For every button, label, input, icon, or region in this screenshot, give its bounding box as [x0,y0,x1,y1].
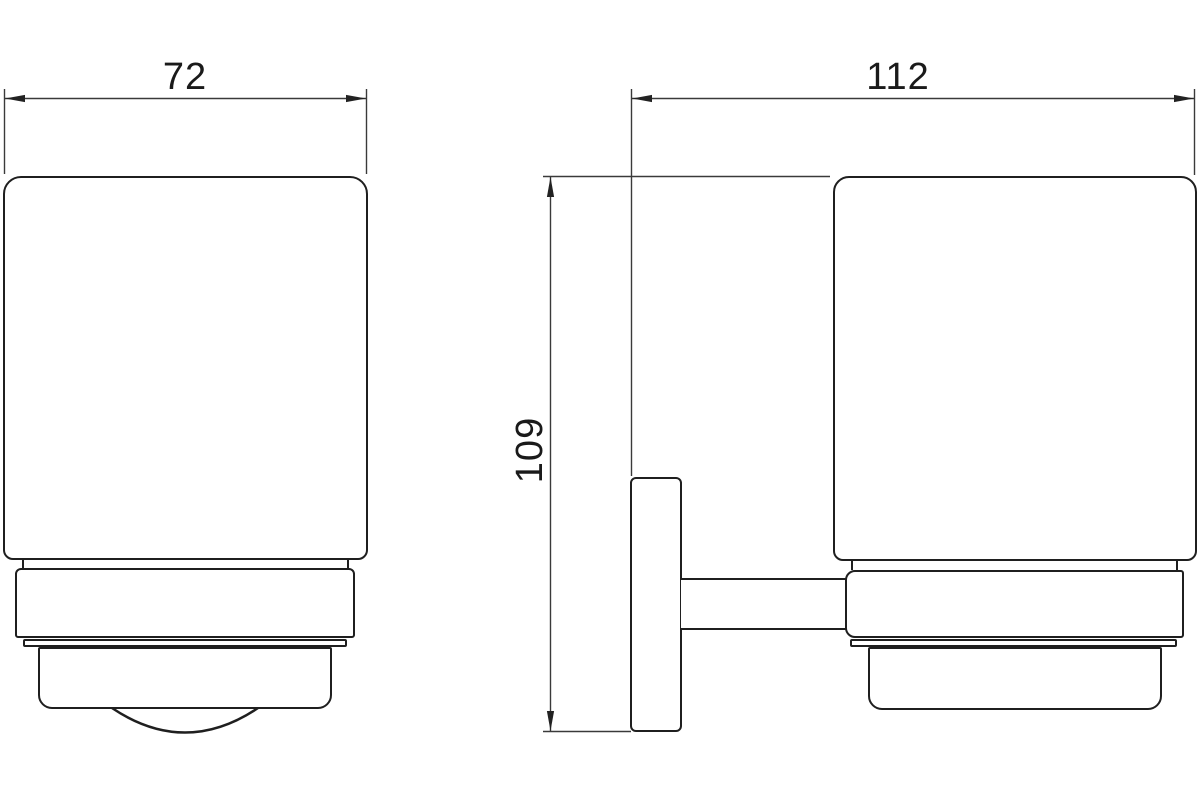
glass-bottom-arc [112,708,258,733]
dim-side-height-arrow-top [547,177,554,197]
dim-front-width-arrow-right [346,95,366,102]
technical-drawing-canvas: 72 112 109 [0,0,1200,800]
dim-side-height [543,177,830,732]
dim-front-width-label: 72 [125,55,245,99]
dim-side-width [632,89,1195,476]
dim-side-height-arrow-bottom [547,711,554,731]
dim-side-width-arrow-left [632,95,652,102]
dim-side-width-arrow-right [1174,95,1194,102]
dim-side-width-label: 112 [828,55,968,99]
dim-side-height-label: 109 [508,380,552,520]
dim-front-width-arrow-left [5,95,25,102]
dimension-overlay [0,0,1200,800]
dim-front-width [5,89,367,174]
